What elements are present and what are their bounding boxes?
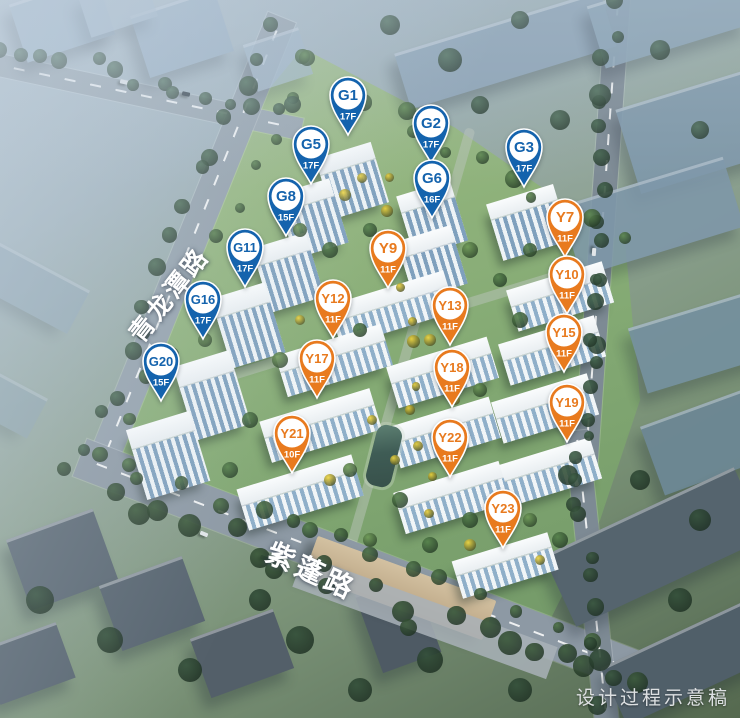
tree: [473, 383, 487, 397]
marker-pin-Y17[interactable]: Y1711F: [295, 338, 339, 400]
pin-building-id: Y12: [321, 291, 344, 306]
tree: [287, 514, 301, 528]
tree: [510, 605, 523, 618]
tree: [584, 637, 597, 650]
tree: [166, 86, 179, 99]
tree: [592, 49, 609, 66]
tree: [412, 382, 420, 390]
pin-building-id: Y21: [280, 426, 303, 441]
tree: [97, 627, 123, 653]
marker-pin-Y15[interactable]: Y1511F: [542, 312, 586, 374]
pin-building-id: Y9: [379, 240, 397, 257]
tree: [512, 312, 528, 328]
tree: [583, 568, 597, 582]
pin-floor-count: 17F: [195, 316, 212, 327]
tree: [222, 462, 238, 478]
tree: [587, 598, 604, 615]
tree: [228, 518, 247, 537]
tree: [107, 61, 124, 78]
aerial-site-plan: 青龙潭路 紫蓬路 G117FG217FG317FG517FG616FG815FG…: [0, 0, 740, 718]
tree: [406, 561, 422, 577]
marker-pin-Y13[interactable]: Y1311F: [428, 285, 472, 347]
tree: [92, 447, 108, 463]
pin-building-id: Y18: [440, 360, 463, 375]
tree: [363, 533, 377, 547]
tree: [251, 160, 261, 170]
tree: [552, 532, 568, 548]
tree: [422, 537, 438, 553]
pin-building-id: G1: [338, 87, 358, 104]
marker-pin-Y23[interactable]: Y2311F: [481, 488, 525, 550]
tree: [462, 512, 478, 528]
map-pin-icon: Y1911F: [545, 382, 589, 444]
pin-floor-count: 11F: [380, 265, 396, 276]
map-pin-icon: G1117F: [223, 227, 267, 289]
tree: [525, 643, 544, 662]
tree: [589, 649, 611, 671]
tree: [334, 528, 348, 542]
map-pin-icon: Y1711F: [295, 338, 339, 400]
tree: [147, 500, 168, 521]
pin-building-id: G2: [421, 115, 441, 132]
tree: [689, 509, 711, 531]
pin-floor-count: 11F: [325, 315, 341, 326]
marker-pin-G6[interactable]: G616F: [410, 158, 454, 220]
tree: [339, 189, 351, 201]
city-block: [190, 609, 294, 698]
tree: [242, 412, 258, 428]
car: [592, 248, 597, 256]
pin-building-id: G11: [233, 240, 257, 255]
map-pin-icon: Y1211F: [311, 278, 355, 340]
tree: [178, 658, 202, 682]
marker-pin-Y19[interactable]: Y1911F: [545, 382, 589, 444]
marker-pin-G16[interactable]: G1617F: [181, 279, 225, 341]
tree: [526, 192, 536, 202]
tree: [175, 476, 188, 489]
pin-floor-count: 11F: [442, 322, 458, 333]
pin-floor-count: 11F: [309, 375, 325, 386]
tree: [424, 509, 434, 519]
marker-pin-Y12[interactable]: Y1211F: [311, 278, 355, 340]
tree: [553, 622, 564, 633]
pin-building-id: Y23: [491, 501, 514, 516]
tree: [474, 588, 486, 600]
tree: [178, 514, 201, 537]
map-pin-icon: G616F: [410, 158, 454, 220]
tree: [400, 619, 417, 636]
tree: [493, 273, 507, 287]
tree: [593, 149, 610, 166]
tree: [322, 242, 338, 258]
pin-building-id: G20: [149, 354, 174, 369]
tree: [650, 40, 670, 60]
watermark-caption: 设计过程示意稿: [576, 683, 730, 710]
marker-pin-Y9[interactable]: Y911F: [366, 228, 410, 290]
map-pin-icon: Y2311F: [481, 488, 525, 550]
tree: [568, 473, 582, 487]
marker-pin-Y22[interactable]: Y2211F: [428, 417, 472, 479]
tree: [464, 539, 476, 551]
tree: [57, 462, 71, 476]
city-block: [0, 622, 76, 705]
tree: [196, 160, 209, 173]
map-pin-icon: G217F: [409, 103, 453, 165]
tree: [438, 48, 462, 72]
tree: [123, 413, 136, 426]
tree: [302, 522, 318, 538]
pin-building-id: Y19: [555, 395, 578, 410]
tree: [271, 134, 282, 145]
map-pin-icon: G317F: [502, 127, 546, 189]
tree: [586, 552, 598, 564]
tree: [523, 243, 537, 257]
tree: [353, 323, 367, 337]
map-pin-icon: G1617F: [181, 279, 225, 341]
pin-building-id: Y10: [555, 267, 578, 282]
tree: [199, 92, 212, 105]
tree: [630, 470, 650, 490]
tree: [299, 50, 315, 66]
marker-pin-G20[interactable]: G2015F: [139, 341, 183, 403]
tree: [390, 455, 400, 465]
tree: [26, 586, 54, 614]
pin-floor-count: 11F: [495, 525, 511, 536]
tree: [249, 589, 271, 611]
pin-building-id: G8: [276, 188, 296, 205]
tree: [535, 555, 545, 565]
pin-floor-count: 16F: [424, 195, 441, 206]
tree: [343, 463, 357, 477]
pin-floor-count: 17F: [516, 164, 533, 175]
pin-floor-count: 11F: [559, 419, 575, 430]
tree: [405, 405, 415, 415]
tree: [324, 474, 336, 486]
tree: [597, 182, 613, 198]
tree: [174, 199, 189, 214]
map-pin-icon: G815F: [264, 176, 308, 238]
pin-floor-count: 11F: [559, 291, 575, 302]
city-block: [628, 290, 740, 393]
car: [200, 531, 209, 538]
tree: [357, 173, 367, 183]
pin-building-id: Y15: [552, 325, 575, 340]
map-pin-icon: G2015F: [139, 341, 183, 403]
tree: [591, 119, 605, 133]
map-pin-icon: Y1311F: [428, 285, 472, 347]
pin-building-id: G16: [191, 292, 216, 307]
tree: [462, 242, 478, 258]
tree: [51, 52, 67, 68]
pin-floor-count: 15F: [278, 213, 295, 224]
tree: [380, 15, 400, 35]
pin-floor-count: 11F: [557, 234, 573, 245]
marker-pin-Y21[interactable]: Y2110F: [270, 413, 314, 475]
marker-pin-Y7[interactable]: Y711F: [543, 197, 587, 259]
tree: [471, 96, 489, 114]
pin-floor-count: 17F: [237, 264, 254, 275]
tree: [348, 678, 372, 702]
pin-building-id: Y22: [438, 430, 461, 445]
tree: [498, 631, 521, 654]
tree: [691, 121, 709, 139]
map-pin-icon: Y2211F: [428, 417, 472, 479]
map-pin-icon: Y2110F: [270, 413, 314, 475]
pin-building-id: Y17: [305, 351, 328, 366]
pin-building-id: G3: [514, 139, 534, 156]
tree: [122, 458, 136, 472]
tree: [263, 17, 278, 32]
tree: [668, 588, 692, 612]
tree: [213, 498, 229, 514]
tree: [250, 53, 263, 66]
tree: [589, 84, 611, 106]
marker-pin-Y10[interactable]: Y1011F: [545, 254, 589, 316]
tree: [550, 110, 570, 130]
map-pin-icon: Y911F: [366, 228, 410, 290]
pin-floor-count: 17F: [423, 140, 440, 151]
tree: [33, 49, 47, 63]
marker-pin-G11[interactable]: G1117F: [223, 227, 267, 289]
marker-pin-G2[interactable]: G217F: [409, 103, 453, 165]
map-pin-icon: Y1511F: [542, 312, 586, 374]
tree: [619, 232, 631, 244]
tree: [417, 647, 443, 673]
tree: [295, 315, 305, 325]
pin-building-id: G5: [301, 136, 321, 153]
tree: [392, 492, 408, 508]
tree: [286, 626, 314, 654]
tree: [130, 472, 143, 485]
tree: [225, 99, 236, 110]
tree: [381, 205, 393, 217]
tree: [511, 11, 529, 29]
tree: [508, 678, 532, 702]
tree: [93, 52, 106, 65]
pin-floor-count: 11F: [444, 384, 460, 395]
tree: [216, 109, 231, 124]
pin-building-id: Y7: [556, 209, 574, 226]
city-block: [0, 354, 48, 438]
tree: [127, 79, 139, 91]
pin-building-id: Y13: [438, 298, 461, 313]
tree: [284, 96, 301, 113]
map-pin-icon: Y711F: [543, 197, 587, 259]
tree: [367, 415, 377, 425]
pin-building-id: G6: [422, 170, 442, 187]
pin-floor-count: 10F: [284, 450, 301, 461]
tree: [239, 76, 259, 96]
pin-floor-count: 17F: [340, 112, 357, 123]
city-block: [0, 239, 90, 334]
tree: [110, 391, 125, 406]
tree: [593, 273, 607, 287]
pin-floor-count: 15F: [153, 378, 170, 389]
pin-floor-count: 11F: [556, 349, 572, 360]
marker-pin-G3[interactable]: G317F: [502, 127, 546, 189]
pin-floor-count: 11F: [442, 454, 458, 465]
map-pin-icon: Y1011F: [545, 254, 589, 316]
city-block: [394, 0, 617, 109]
tree: [447, 606, 465, 624]
tree: [362, 547, 378, 563]
tree: [523, 513, 537, 527]
marker-pin-G8[interactable]: G815F: [264, 176, 308, 238]
map-pin-icon: Y1811F: [430, 347, 474, 409]
marker-pin-Y18[interactable]: Y1811F: [430, 347, 474, 409]
tree: [256, 501, 273, 518]
tree: [569, 451, 581, 463]
tree: [107, 483, 124, 500]
tree: [272, 352, 288, 368]
pin-floor-count: 17F: [303, 161, 320, 172]
